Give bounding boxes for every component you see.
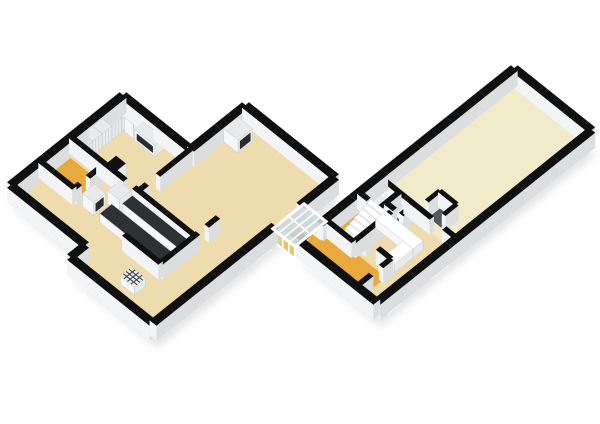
- floorplan-3d-render: [0, 0, 600, 424]
- floorplan-canvas[interactable]: [0, 0, 600, 424]
